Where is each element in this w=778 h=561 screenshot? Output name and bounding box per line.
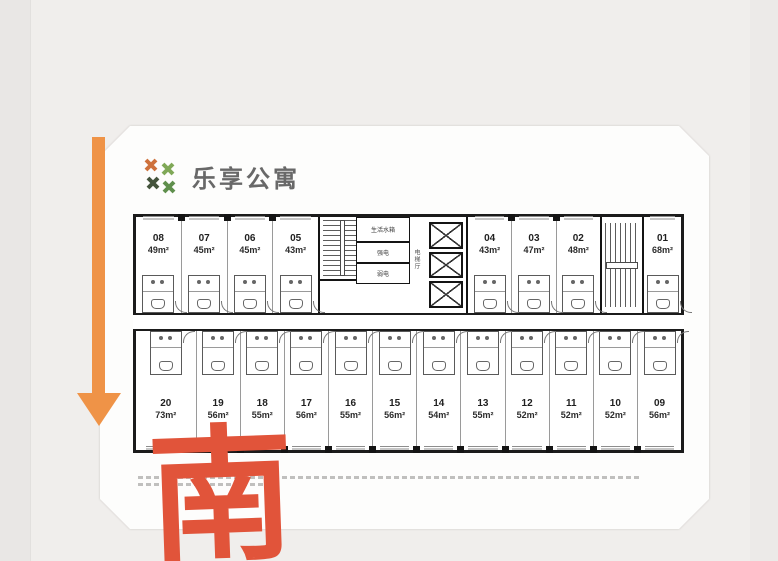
window-icon	[475, 216, 504, 221]
unit-cell: 08 49m²	[136, 217, 181, 313]
strong-power-room: 强电	[356, 242, 410, 263]
unit-number: 06	[228, 233, 273, 244]
unit-number: 16	[329, 398, 372, 409]
unit-area: 52m²	[594, 410, 637, 420]
unit-cell: 01 68m²	[644, 217, 681, 313]
units-04-02: 04 43m² 03 47m² 02 48m²	[468, 217, 600, 313]
door-arc-icon	[632, 331, 644, 343]
window-icon	[424, 446, 453, 451]
unit-cell: 10 52m²	[593, 331, 637, 450]
unit-label: 01 68m²	[644, 233, 681, 255]
south-arrow-shaft	[92, 137, 105, 395]
unit-cell: 15 56m²	[372, 331, 416, 450]
bathroom-pod-icon	[246, 331, 278, 375]
unit-area: 52m²	[506, 410, 549, 420]
unit-area: 47m²	[512, 245, 555, 255]
building-core: 生活水箱 强电 弱电 电梯厅	[318, 217, 468, 313]
unit-area: 45m²	[182, 245, 227, 255]
unit-01-group: 01 68m²	[644, 217, 681, 313]
door-arc-icon	[235, 331, 247, 343]
floorplan-photo-page: 乐享公寓 08 49m² 07 45m² 06 45m²	[0, 0, 778, 561]
unit-number: 17	[285, 398, 328, 409]
window-icon	[564, 216, 593, 221]
unit-cell: 13 55m²	[460, 331, 504, 450]
unit-number: 18	[241, 398, 284, 409]
brand-logo: 乐享公寓	[140, 156, 300, 196]
central-corridor	[133, 315, 684, 329]
unit-label: 02 48m²	[557, 233, 600, 255]
unit-number: 12	[506, 398, 549, 409]
unit-number: 08	[136, 233, 181, 244]
south-arrow-head-icon	[77, 393, 121, 426]
unit-number: 09	[638, 398, 681, 409]
bathroom-pod-icon	[379, 331, 411, 375]
bathroom-pod-icon	[188, 275, 220, 313]
unit-label: 12 52m²	[506, 398, 549, 420]
unit-area: 56m²	[638, 410, 681, 420]
unit-label: 07 45m²	[182, 233, 227, 255]
pinwheel-logo-icon	[140, 156, 180, 196]
unit-area: 54m²	[417, 410, 460, 420]
door-arc-icon	[544, 331, 556, 343]
unit-area: 48m²	[557, 245, 600, 255]
unit-number: 02	[557, 233, 600, 244]
bathroom-pod-icon	[474, 275, 506, 313]
unit-number: 10	[594, 398, 637, 409]
bathroom-pod-icon	[290, 331, 322, 375]
window-icon	[468, 446, 497, 451]
unit-label: 06 45m²	[228, 233, 273, 255]
door-arc-icon	[500, 331, 512, 343]
window-icon	[280, 216, 310, 221]
window-icon	[601, 446, 630, 451]
bathroom-pod-icon	[280, 275, 312, 313]
door-arc-icon	[551, 301, 563, 313]
unit-label: 04 43m²	[468, 233, 511, 255]
door-arc-icon	[175, 301, 187, 313]
unit-cell: 11 52m²	[549, 331, 593, 450]
window-icon	[519, 216, 548, 221]
door-arc-icon	[368, 331, 380, 343]
window-icon	[512, 446, 541, 451]
units-08-05: 08 49m² 07 45m² 06 45m² 05 43m²	[136, 217, 318, 313]
unit-cell: 12 52m²	[505, 331, 549, 450]
unit-label: 17 56m²	[285, 398, 328, 420]
window-icon	[557, 446, 586, 451]
window-icon	[189, 216, 219, 221]
bathroom-pod-icon	[423, 331, 455, 375]
unit-area: 43m²	[468, 245, 511, 255]
window-icon	[650, 216, 675, 221]
unit-label: 13 55m²	[461, 398, 504, 420]
unit-area: 55m²	[329, 410, 372, 420]
unit-cell: 06 45m²	[227, 217, 273, 313]
unit-label: 09 56m²	[638, 398, 681, 420]
unit-label: 14 54m²	[417, 398, 460, 420]
door-arc-icon	[221, 301, 233, 313]
unit-cell: 04 43m²	[468, 217, 511, 313]
door-arc-icon	[588, 331, 600, 343]
bathroom-pod-icon	[562, 275, 594, 313]
unit-number: 03	[512, 233, 555, 244]
brand-name: 乐享公寓	[192, 159, 300, 194]
bathroom-pod-icon	[644, 331, 676, 375]
window-icon	[143, 216, 173, 221]
elevator-shaft-icon	[429, 252, 463, 279]
window-icon	[292, 446, 321, 451]
door-arc-icon	[313, 301, 325, 313]
window-icon	[645, 446, 674, 451]
weak-power-room: 弱电	[356, 263, 410, 284]
unit-number: 11	[550, 398, 593, 409]
elevator-shaft-icon	[429, 222, 463, 249]
unit-label: 05 43m²	[273, 233, 318, 255]
unit-number: 19	[197, 398, 240, 409]
unit-number: 15	[373, 398, 416, 409]
bathroom-pod-icon	[202, 331, 234, 375]
unit-label: 11 52m²	[550, 398, 593, 420]
window-icon	[235, 216, 265, 221]
bathroom-pod-icon	[518, 275, 550, 313]
unit-cell: 07 45m²	[181, 217, 227, 313]
door-arc-icon	[412, 331, 424, 343]
bathroom-pod-icon	[335, 331, 367, 375]
unit-area: 43m²	[273, 245, 318, 255]
door-arc-icon	[279, 331, 291, 343]
elevator-bank	[429, 222, 463, 308]
door-arc-icon	[323, 331, 335, 343]
unit-number: 01	[644, 233, 681, 244]
bathroom-pod-icon	[647, 275, 679, 313]
window-icon	[336, 446, 365, 451]
door-arc-icon	[456, 331, 468, 343]
unit-number: 07	[182, 233, 227, 244]
window-icon	[380, 446, 409, 451]
unit-area: 45m²	[228, 245, 273, 255]
staircase-east-icon	[600, 217, 644, 313]
door-arc-icon	[507, 301, 519, 313]
bathroom-pod-icon	[234, 275, 266, 313]
bathroom-pod-icon	[511, 331, 543, 375]
door-arc-icon	[267, 301, 279, 313]
water-tank-room: 生活水箱	[356, 217, 410, 242]
unit-label: 10 52m²	[594, 398, 637, 420]
door-arc-icon	[677, 331, 689, 343]
unit-area: 55m²	[461, 410, 504, 420]
bathroom-pod-icon	[467, 331, 499, 375]
elevator-shaft-icon	[429, 281, 463, 308]
unit-cell: 02 48m²	[556, 217, 600, 313]
bathroom-pod-icon	[142, 275, 174, 313]
unit-area: 49m²	[136, 245, 181, 255]
unit-cell: 14 54m²	[416, 331, 460, 450]
bathroom-pod-icon	[555, 331, 587, 375]
door-arc-icon	[595, 301, 607, 313]
south-compass-label: 南	[145, 421, 296, 561]
unit-cell: 05 43m²	[272, 217, 318, 313]
north-unit-row: 08 49m² 07 45m² 06 45m² 05 43m²	[133, 214, 684, 315]
door-arc-icon	[183, 331, 195, 343]
unit-cell: 03 47m²	[511, 217, 555, 313]
unit-number: 04	[468, 233, 511, 244]
unit-cell: 16 55m²	[328, 331, 372, 450]
elevator-hall-label: 电梯厅	[412, 249, 421, 270]
unit-number: 05	[273, 233, 318, 244]
unit-label: 03 47m²	[512, 233, 555, 255]
unit-area: 52m²	[550, 410, 593, 420]
bathroom-pod-icon	[150, 331, 182, 375]
unit-area: 68m²	[644, 245, 681, 255]
unit-label: 08 49m²	[136, 233, 181, 255]
unit-cell: 09 56m²	[637, 331, 681, 450]
unit-number: 20	[136, 398, 196, 409]
unit-label: 15 56m²	[373, 398, 416, 420]
unit-number: 13	[461, 398, 504, 409]
bathroom-pod-icon	[599, 331, 631, 375]
door-arc-icon	[680, 301, 692, 313]
unit-label: 16 55m²	[329, 398, 372, 420]
unit-number: 14	[417, 398, 460, 409]
unit-area: 56m²	[373, 410, 416, 420]
